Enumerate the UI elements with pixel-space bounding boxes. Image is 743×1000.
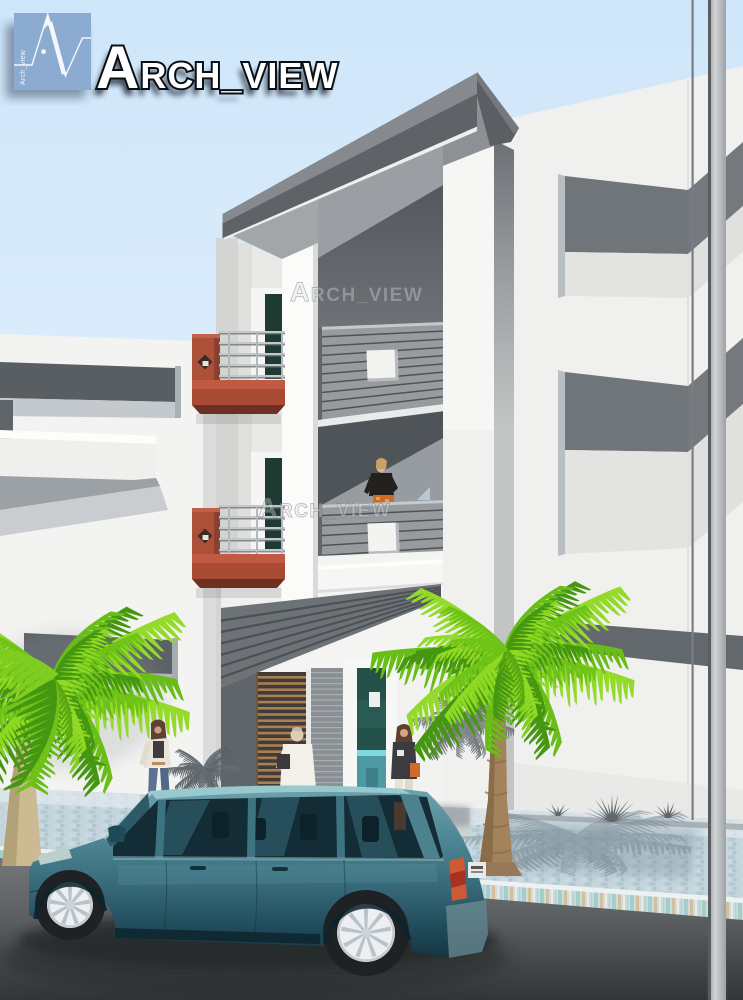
svg-text:Arch_view: Arch_view xyxy=(20,49,27,85)
